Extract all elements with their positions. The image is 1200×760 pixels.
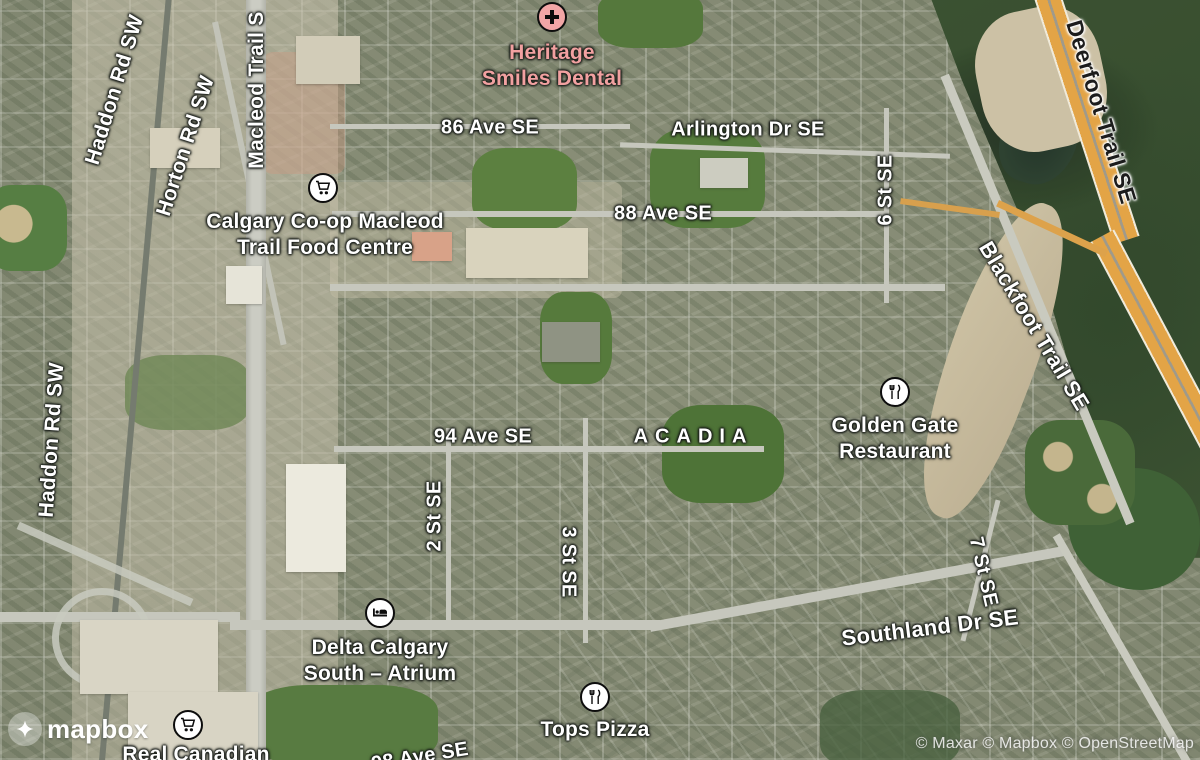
lodging-icon[interactable] [365, 598, 395, 628]
cross-avenue-road-line [330, 284, 945, 291]
2-st-road-line [446, 428, 451, 628]
ballpark-field [1025, 420, 1135, 525]
blackfoot-trail-road-line [1053, 533, 1192, 760]
poi-label-line: Calgary Co-op Macleod [206, 209, 444, 235]
mapbox-logo-icon [8, 712, 42, 746]
poi-label-line: Tops Pizza [541, 717, 650, 743]
map-attribution[interactable]: © Maxar © Mapbox © OpenStreetMap [916, 735, 1194, 753]
3-st-road-line [583, 418, 588, 643]
southland-road-line [0, 612, 240, 622]
arlington-road-line [620, 142, 950, 159]
coop-store-roof [466, 228, 588, 278]
poi-label-tops-pizza[interactable]: Tops Pizza [541, 717, 650, 743]
road-label-deerfoot-trail-se: Deerfoot Trail SE [1060, 17, 1141, 207]
road-label-7-st-se: 7 St SE [964, 535, 1002, 609]
poi-label-delta-calgary-south[interactable]: Delta Calgary South – Atrium [304, 635, 457, 687]
poi-label-golden-gate-restaurant[interactable]: Golden Gate Restaurant [831, 413, 958, 465]
big-box-store-roof [286, 464, 346, 572]
building-roof [226, 266, 262, 304]
mapbox-logo[interactable]: mapbox [8, 712, 148, 746]
shopping-cart-icon[interactable] [173, 710, 203, 740]
road-label-2-st-se: 2 St SE [424, 480, 447, 551]
building-roof [296, 36, 360, 84]
map-canvas[interactable]: Haddon Rd SW Horton Rd SW Macleod Trail … [0, 0, 1200, 760]
southland-road-line [230, 620, 660, 630]
road-label-98-ave-se: 98 Ave SE [370, 738, 470, 760]
poi-label-line: Smiles Dental [482, 66, 622, 92]
highway-ramp [996, 200, 1108, 257]
park-patch [125, 355, 250, 430]
road-label-blackfoot-trail-se: Blackfoot Trail SE [973, 237, 1094, 415]
road-label-haddon-rd-sw: Haddon Rd SW [35, 362, 70, 519]
poi-label-line: Trail Food Centre [206, 235, 444, 261]
hospital-cross-icon[interactable] [537, 2, 567, 32]
mall-roof [80, 620, 218, 694]
road-label-horton-rd-sw: Horton Rd SW [152, 73, 220, 219]
road-label-haddon-rd-sw: Haddon Rd SW [81, 12, 149, 167]
poi-label-line: South – Atrium [304, 661, 457, 687]
park-patch [472, 148, 577, 230]
poi-label-calgary-coop[interactable]: Calgary Co-op Macleod Trail Food Centre [206, 209, 444, 261]
road-label-88-ave-se: 88 Ave SE [614, 203, 712, 226]
ballpark-field [0, 185, 67, 271]
restaurant-icon[interactable] [880, 377, 910, 407]
pond [989, 76, 1091, 194]
highway-ramp [900, 198, 1000, 218]
mapbox-wordmark: mapbox [47, 714, 148, 745]
pink-roofs-tint [263, 52, 345, 174]
shopping-cart-icon[interactable] [308, 173, 338, 203]
road-label-southland-dr-se: Southland Dr SE [840, 604, 1020, 652]
golf-greenspace [1068, 468, 1200, 590]
river-valley-greenspace [895, 0, 1200, 575]
poi-label-line: Heritage [482, 40, 622, 66]
interchange-ramp [17, 522, 194, 607]
road-label-6-st-se: 6 St SE [875, 154, 898, 225]
poi-label-line: Restaurant [831, 439, 958, 465]
neighborhood-label-acadia: ACADIA [627, 426, 754, 449]
poi-label-heritage-smiles-dental[interactable]: Heritage Smiles Dental [482, 40, 622, 92]
road-label-94-ave-se: 94 Ave SE [434, 426, 532, 449]
poi-label-line: Golden Gate [831, 413, 958, 439]
road-label-arlington-dr-se: Arlington Dr SE [671, 119, 824, 142]
restaurant-icon[interactable] [580, 682, 610, 712]
park-patch [540, 292, 612, 384]
deerfoot-highway [1090, 230, 1200, 490]
road-label-86-ave-se: 86 Ave SE [441, 117, 539, 140]
road-label-3-st-se: 3 St SE [557, 526, 580, 597]
road-label-macleod-trail-s: Macleod Trail S [245, 11, 269, 168]
poi-label-line: Delta Calgary [304, 635, 457, 661]
park-patch [662, 405, 784, 503]
interchange-loop-ramp [52, 588, 152, 688]
school-roof [700, 158, 748, 188]
curved-streets-texture [560, 430, 1105, 760]
apartment-roof [542, 322, 600, 362]
